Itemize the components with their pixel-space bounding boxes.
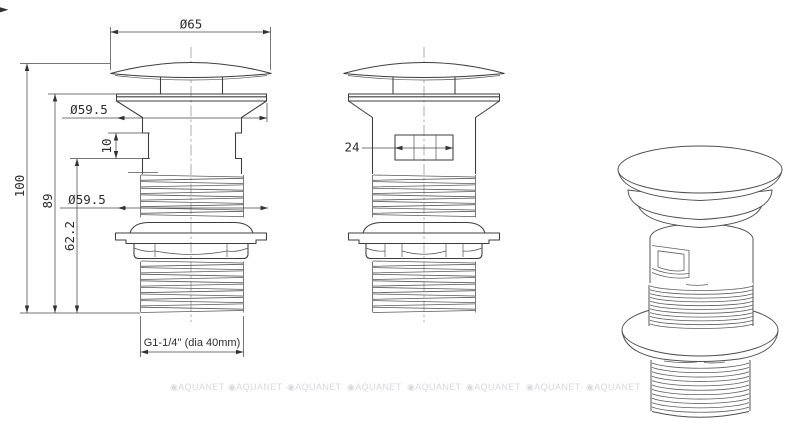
taper (117, 101, 267, 118)
front-view (111, 47, 272, 322)
lower-threads (141, 261, 243, 313)
upper-threads (141, 175, 243, 217)
body-3d (650, 224, 753, 286)
edge-arrow-artifact (0, 7, 9, 12)
technical-drawing-canvas: Ø65 Ø59.5 Ø59.5 100 89 62.2 10 G1-1/4'' … (0, 0, 800, 438)
watermark: ◉AQUANET (466, 382, 521, 392)
cap-outline (111, 63, 272, 78)
render-3d-view (618, 146, 782, 417)
collar-flange (117, 94, 267, 101)
watermark: ◉AQUANET (347, 382, 402, 392)
watermark: ◉AQUANET (407, 382, 462, 392)
cap-outline (344, 63, 505, 78)
gasket (130, 223, 253, 234)
watermark: ◉AQUANET (170, 382, 225, 392)
watermark: ◉AQUANET (586, 382, 641, 392)
body-left-edge (143, 118, 149, 174)
watermark-row: ◉AQUANET ◉AQUANET ◉AQUANET ◉AQUANET ◉AQU… (170, 382, 641, 392)
dim-overall-height: 100 (12, 175, 27, 198)
dim-slot-width: 24 (344, 140, 359, 155)
dim-slot-height: 10 (99, 138, 114, 153)
body-right-edge (236, 118, 242, 174)
slot-dividers (414, 135, 436, 160)
watermark: ◉AQUANET (526, 382, 581, 392)
dim-thread-spec: G1-1/4'' (dia 40mm) (144, 337, 241, 349)
dim-height-below-slot: 62.2 (62, 221, 77, 251)
dim-cap-diameter: Ø65 (180, 17, 203, 32)
drawing-svg: Ø65 Ø59.5 Ø59.5 100 89 62.2 10 G1-1/4'' … (0, 0, 800, 438)
cap-top-3d (618, 146, 782, 193)
dim-height-below-collar: 89 (40, 193, 55, 208)
side-view: 24 (344, 47, 505, 322)
dim-collar-diameter: Ø59.5 (70, 102, 108, 117)
watermark: ◉AQUANET (287, 382, 342, 392)
dim-washer-diameter: Ø59.5 (68, 192, 106, 207)
watermark: ◉AQUANET (228, 382, 283, 392)
